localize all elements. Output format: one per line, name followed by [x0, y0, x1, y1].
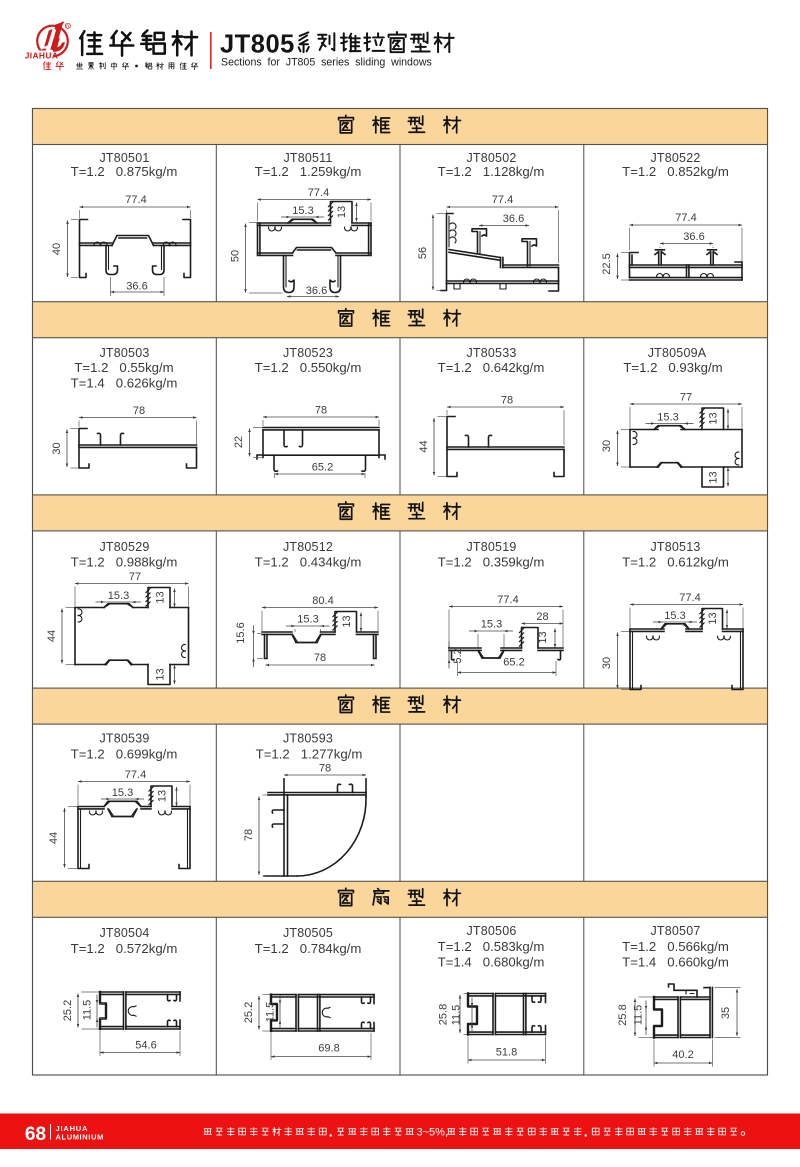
- svg-text:T=1.2 1.128kg/m: T=1.2 1.128kg/m: [438, 164, 545, 179]
- svg-text:JT80506: JT80506: [466, 924, 516, 938]
- svg-text:13: 13: [708, 412, 720, 424]
- svg-text:T=1.2 0.93kg/m: T=1.2 0.93kg/m: [623, 360, 722, 375]
- svg-text:11.5: 11.5: [451, 1005, 463, 1026]
- svg-text:77: 77: [129, 571, 141, 583]
- svg-text:80.4: 80.4: [312, 595, 333, 607]
- svg-text:T=1.2 0.55kg/m: T=1.2 0.55kg/m: [74, 360, 173, 375]
- svg-text:25.8: 25.8: [438, 1004, 450, 1025]
- svg-text:77.4: 77.4: [679, 592, 700, 604]
- svg-text:15.3: 15.3: [481, 619, 502, 631]
- svg-text:78: 78: [314, 652, 326, 664]
- svg-text:T=1.2 1.277kg/m: T=1.2 1.277kg/m: [256, 747, 363, 762]
- svg-text:JT80509A: JT80509A: [648, 346, 707, 360]
- svg-text:3~5%,: 3~5%,: [417, 1127, 449, 1139]
- svg-text:Sections for JT805 series: Sections for JT805 series sliding window…: [221, 57, 432, 69]
- svg-text:44: 44: [418, 440, 430, 452]
- svg-text:JT80501: JT80501: [99, 151, 149, 165]
- svg-text:40.2: 40.2: [672, 1049, 693, 1061]
- svg-text:13: 13: [537, 631, 549, 643]
- svg-text:36.6: 36.6: [683, 231, 704, 243]
- svg-text:78: 78: [243, 829, 255, 841]
- svg-text:13: 13: [341, 615, 353, 627]
- svg-text:T=1.2 0.699kg/m: T=1.2 0.699kg/m: [71, 747, 178, 762]
- svg-text:15.6: 15.6: [235, 622, 247, 643]
- svg-text:T=1.2 0.612kg/m: T=1.2 0.612kg/m: [622, 555, 729, 570]
- svg-text:65.2: 65.2: [503, 657, 524, 669]
- svg-text:77.4: 77.4: [492, 194, 513, 206]
- svg-text:T=1.2 0.642kg/m: T=1.2 0.642kg/m: [438, 360, 545, 375]
- svg-text:36.6: 36.6: [503, 213, 524, 225]
- svg-text:51.8: 51.8: [496, 1047, 517, 1059]
- svg-text:77.4: 77.4: [308, 187, 329, 199]
- svg-text:JT80533: JT80533: [466, 346, 516, 360]
- svg-text:T=1.2 0.550kg/m: T=1.2 0.550kg/m: [255, 360, 362, 375]
- svg-text:T=1.4 0.626kg/m: T=1.4 0.626kg/m: [71, 376, 178, 391]
- svg-text:15.3: 15.3: [297, 614, 318, 626]
- svg-text:36.6: 36.6: [306, 285, 327, 297]
- svg-text:77.4: 77.4: [125, 769, 146, 781]
- svg-text:15.3: 15.3: [292, 205, 313, 217]
- svg-text:5.2: 5.2: [452, 648, 464, 663]
- svg-text:25.2: 25.2: [62, 1000, 74, 1021]
- svg-text:15.3: 15.3: [664, 610, 685, 622]
- svg-text:T=1.2 0.852kg/m: T=1.2 0.852kg/m: [622, 164, 729, 179]
- svg-text:11.5: 11.5: [265, 1002, 277, 1023]
- svg-text:15.3: 15.3: [108, 590, 129, 602]
- svg-text:77: 77: [680, 392, 692, 404]
- svg-text:JT80519: JT80519: [466, 540, 516, 554]
- svg-text:JT80511: JT80511: [283, 151, 332, 165]
- svg-text:40: 40: [51, 243, 63, 255]
- svg-text:30: 30: [601, 440, 613, 452]
- svg-text:JT80539: JT80539: [99, 732, 149, 746]
- svg-text:44: 44: [46, 630, 58, 642]
- svg-text:22.5: 22.5: [601, 253, 613, 274]
- svg-text:JT80512: JT80512: [283, 540, 333, 554]
- svg-text:JT80505: JT80505: [283, 926, 333, 940]
- svg-text:JIAHUA: JIAHUA: [25, 51, 59, 61]
- svg-text:78: 78: [319, 763, 331, 775]
- svg-text:25.8: 25.8: [617, 1004, 629, 1025]
- svg-text:15.3: 15.3: [112, 787, 133, 799]
- svg-text:JT80522: JT80522: [650, 151, 700, 165]
- svg-text:JT80502: JT80502: [466, 151, 516, 165]
- svg-text:44: 44: [48, 832, 60, 844]
- svg-text:77.4: 77.4: [497, 594, 518, 606]
- svg-text:T=1.2 1.259kg/m: T=1.2 1.259kg/m: [255, 164, 362, 179]
- svg-text:T=1.4 0.660kg/m: T=1.4 0.660kg/m: [622, 955, 729, 970]
- svg-text:R: R: [66, 24, 69, 29]
- svg-text:JT80513: JT80513: [650, 540, 700, 554]
- svg-text:56: 56: [417, 247, 429, 259]
- svg-text:13: 13: [708, 471, 720, 483]
- svg-text:13: 13: [155, 591, 167, 603]
- svg-text:JT80507: JT80507: [650, 924, 700, 938]
- svg-text:JT80529: JT80529: [99, 540, 149, 554]
- svg-text:30: 30: [51, 442, 63, 454]
- svg-text:T=1.4 0.680kg/m: T=1.4 0.680kg/m: [438, 955, 545, 970]
- svg-text:68: 68: [25, 1124, 46, 1145]
- svg-text:JT805: JT805: [220, 31, 295, 59]
- svg-text:T=1.2 0.875kg/m: T=1.2 0.875kg/m: [71, 164, 178, 179]
- svg-text:13: 13: [707, 612, 719, 624]
- svg-text:ALUMINIUM: ALUMINIUM: [56, 1133, 104, 1142]
- svg-text:13: 13: [155, 668, 167, 680]
- svg-text:54.6: 54.6: [135, 1040, 156, 1052]
- svg-text:28: 28: [536, 611, 548, 623]
- svg-text:T=1.2 0.583kg/m: T=1.2 0.583kg/m: [438, 939, 545, 954]
- svg-text:65.2: 65.2: [312, 462, 333, 474]
- svg-text:36.6: 36.6: [126, 281, 147, 293]
- svg-text:T=1.2 0.566kg/m: T=1.2 0.566kg/m: [622, 939, 729, 954]
- svg-text:22: 22: [233, 436, 245, 448]
- svg-text:JT80503: JT80503: [99, 346, 149, 360]
- svg-text:T=1.2 0.784kg/m: T=1.2 0.784kg/m: [255, 941, 362, 956]
- svg-text:13: 13: [157, 790, 169, 802]
- svg-text:25.2: 25.2: [243, 1002, 255, 1023]
- svg-text:69.8: 69.8: [318, 1043, 339, 1055]
- svg-text:78: 78: [501, 395, 513, 407]
- svg-text:77.4: 77.4: [675, 212, 696, 224]
- svg-text:15.3: 15.3: [657, 412, 678, 424]
- svg-text:JT80593: JT80593: [283, 732, 333, 746]
- svg-text:T=1.2 0.572kg/m: T=1.2 0.572kg/m: [71, 941, 178, 956]
- svg-text:T=1.2 0.359kg/m: T=1.2 0.359kg/m: [438, 555, 545, 570]
- svg-text:JT80523: JT80523: [283, 346, 333, 360]
- svg-text:35: 35: [720, 1007, 732, 1019]
- svg-text:T=1.2 0.434kg/m: T=1.2 0.434kg/m: [255, 555, 362, 570]
- svg-text:JT80504: JT80504: [99, 926, 149, 940]
- svg-text:50: 50: [230, 250, 242, 262]
- svg-text:T=1.2 0.988kg/m: T=1.2 0.988kg/m: [71, 555, 178, 570]
- svg-text:78: 78: [133, 405, 145, 417]
- svg-text:78: 78: [315, 405, 327, 417]
- svg-text:11.5: 11.5: [82, 1000, 94, 1021]
- svg-text:11.5: 11.5: [633, 1005, 645, 1026]
- svg-text:30: 30: [601, 657, 613, 669]
- svg-text:13: 13: [336, 206, 348, 218]
- svg-text:77.4: 77.4: [125, 194, 146, 206]
